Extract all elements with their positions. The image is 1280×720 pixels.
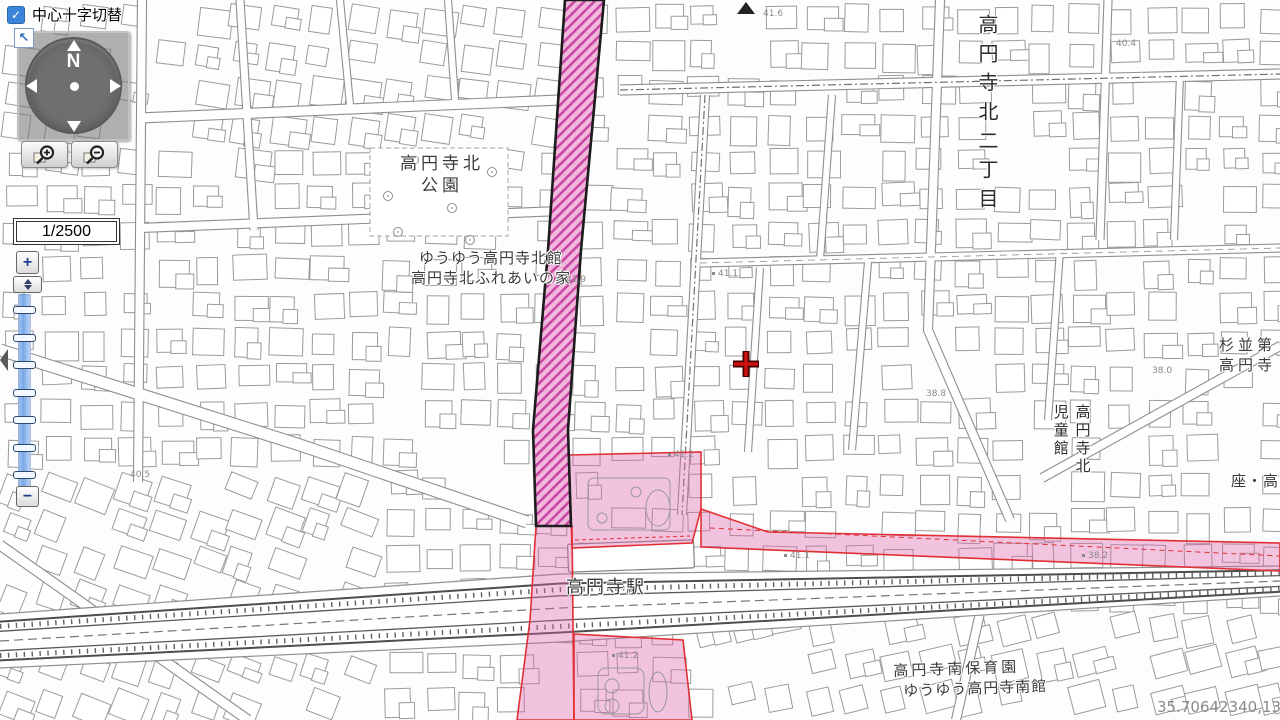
magnifier-minus-icon [82,144,108,166]
park-area [370,148,508,245]
pan-up-arrow-icon[interactable] [67,40,81,51]
pan-down-arrow-icon[interactable] [67,121,81,132]
map-canvas[interactable] [0,0,1280,720]
slider-tick[interactable] [13,334,36,342]
checkbox-checked-icon[interactable]: ✓ [7,6,25,24]
slider-tick[interactable] [13,471,36,479]
slider-tick[interactable] [13,416,36,424]
coordinates-readout: 35.70642340,139.6 [1157,698,1280,716]
slider-handle[interactable] [13,276,42,293]
crosshair-toggle-label: 中心十字切替 [32,4,122,25]
slider-zoom-in-button[interactable]: + [16,251,39,274]
magnifier-plus-icon [32,144,58,166]
slider-tick[interactable] [13,361,36,369]
zoom-out-button[interactable] [71,141,118,168]
scale-display [13,218,120,245]
pan-left-arrow-icon[interactable] [26,79,37,93]
slider-zoom-out-button[interactable]: − [16,486,39,507]
center-crosshair-toggle[interactable]: ✓ 中心十字切替 [7,4,122,25]
scale-input[interactable] [16,221,117,242]
pan-northwest-button[interactable]: ↖ [14,28,34,48]
zoom-in-button[interactable] [21,141,68,168]
slider-tick[interactable] [13,306,36,314]
pan-right-arrow-icon[interactable] [110,79,121,93]
slider-tick[interactable] [13,389,36,397]
down-triangle-icon [24,285,32,290]
northwest-arrow-icon: ↖ [19,30,30,46]
compass-center-dot-icon[interactable] [70,82,79,91]
map-application: 高円寺北 公園ゆうゆう高円寺北館 高円寺北ふれあいの家高円寺駅高円寺北二丁目杉並… [0,0,1280,720]
up-triangle-icon [24,279,32,284]
panel-collapse-arrow-icon[interactable] [0,349,8,371]
slider-tick[interactable] [13,444,36,452]
zoom-slider-track[interactable] [18,294,31,487]
north-label: N [67,51,81,73]
